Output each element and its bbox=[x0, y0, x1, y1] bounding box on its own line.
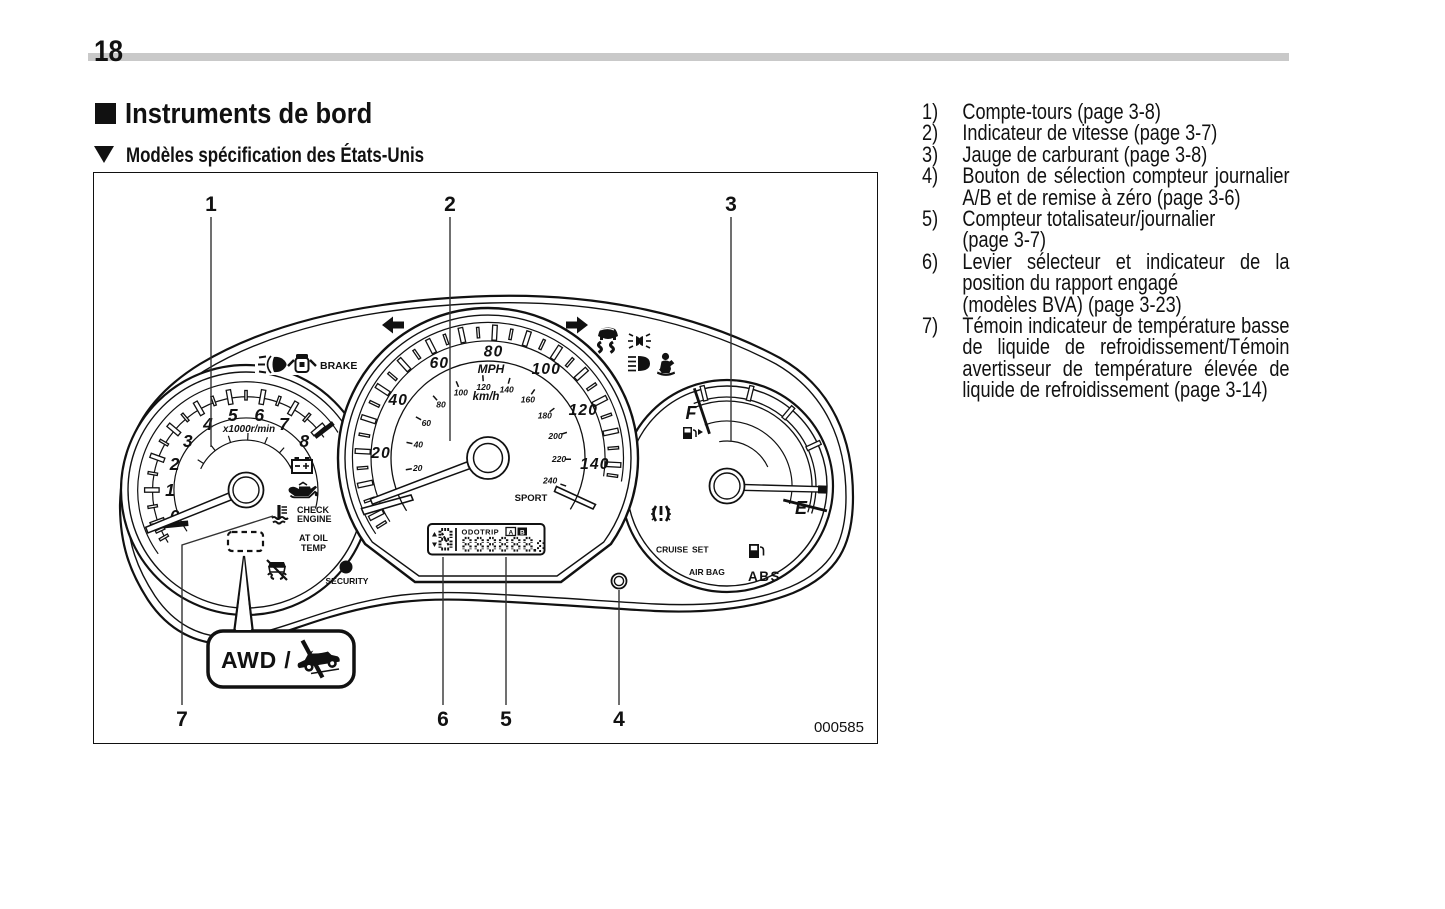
svg-text:AIR BAG: AIR BAG bbox=[689, 567, 725, 577]
svg-text:F: F bbox=[686, 403, 698, 423]
svg-text:2: 2 bbox=[169, 454, 180, 474]
svg-text:BRAKE: BRAKE bbox=[320, 360, 357, 372]
svg-text:140: 140 bbox=[500, 385, 514, 395]
svg-text:6: 6 bbox=[254, 405, 264, 425]
svg-text:E: E bbox=[795, 498, 808, 518]
svg-text:160: 160 bbox=[521, 394, 535, 404]
svg-text:220: 220 bbox=[551, 454, 566, 464]
svg-text:B: B bbox=[520, 530, 525, 537]
svg-text:CRUISE: CRUISE bbox=[656, 545, 688, 555]
svg-text:5: 5 bbox=[500, 708, 512, 731]
svg-text:3: 3 bbox=[725, 193, 737, 216]
svg-text:2: 2 bbox=[444, 193, 456, 216]
svg-text:AT OIL: AT OIL bbox=[299, 533, 328, 543]
svg-text:100: 100 bbox=[532, 361, 561, 378]
svg-text:20: 20 bbox=[412, 463, 423, 473]
svg-text:SECURITY: SECURITY bbox=[326, 576, 369, 586]
svg-text:80: 80 bbox=[436, 400, 446, 410]
svg-text:20: 20 bbox=[370, 445, 391, 462]
svg-text:TEMP: TEMP bbox=[301, 543, 326, 553]
svg-text:A: A bbox=[508, 530, 513, 537]
svg-text:000585: 000585 bbox=[814, 719, 864, 736]
svg-text:SPORT: SPORT bbox=[515, 493, 548, 504]
svg-text:km/h: km/h bbox=[473, 391, 500, 403]
svg-text:ODOTRIP: ODOTRIP bbox=[462, 528, 500, 537]
svg-text:180: 180 bbox=[538, 410, 552, 420]
svg-text:240: 240 bbox=[542, 475, 557, 485]
svg-text:MPH: MPH bbox=[478, 362, 505, 376]
svg-text:ENGINE: ENGINE bbox=[297, 514, 332, 524]
svg-text:AWD /: AWD / bbox=[221, 647, 291, 673]
svg-text:7: 7 bbox=[176, 708, 188, 731]
svg-text:ABS: ABS bbox=[748, 569, 781, 584]
svg-text:80: 80 bbox=[484, 344, 504, 361]
svg-text:4: 4 bbox=[613, 708, 625, 731]
svg-text:40: 40 bbox=[413, 440, 424, 450]
svg-text:5: 5 bbox=[228, 405, 238, 425]
svg-text:60: 60 bbox=[422, 418, 432, 428]
svg-text:100: 100 bbox=[454, 387, 468, 397]
svg-text:6: 6 bbox=[437, 708, 449, 731]
svg-text:1: 1 bbox=[205, 193, 217, 216]
svg-text:200: 200 bbox=[547, 431, 562, 441]
svg-text:SET: SET bbox=[692, 545, 709, 555]
